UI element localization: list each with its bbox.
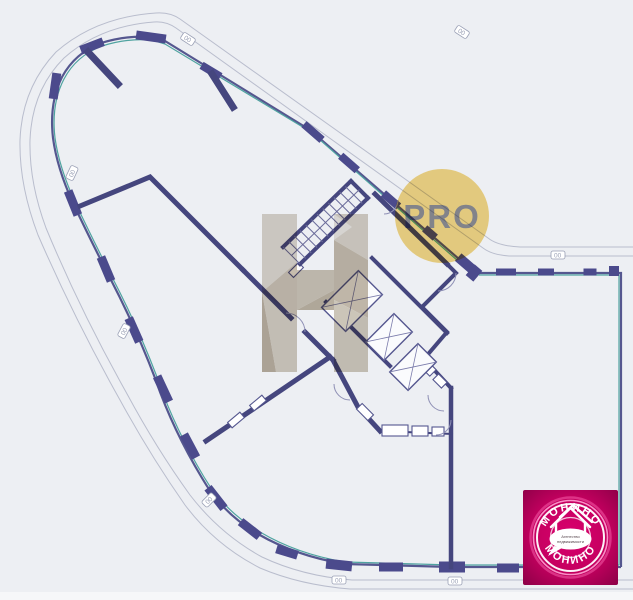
- floor-plan-page: 00 00 00 00 00 00 00 00 PRO МОНИНО МОНИН…: [0, 0, 633, 600]
- floor-plan-drawing: 00 00 00 00 00 00 00 00 PRO МОНИНО МОНИН…: [0, 0, 633, 600]
- elevator-shaft: [366, 314, 413, 361]
- svg-text:00: 00: [451, 578, 459, 585]
- pro-badge-label: PRO: [403, 198, 481, 235]
- h-letter-watermark: [262, 214, 368, 372]
- pier-wall: [88, 52, 118, 84]
- pro-badge-watermark: PRO: [395, 169, 489, 263]
- agency-tagline-line2: недвижимости: [557, 539, 584, 544]
- svg-text:00: 00: [335, 577, 343, 584]
- svg-text:00: 00: [554, 252, 562, 259]
- bottom-strip: [0, 592, 633, 600]
- agency-logo: МОНИНО МОНИНО Агентство недвижимости: [523, 490, 618, 585]
